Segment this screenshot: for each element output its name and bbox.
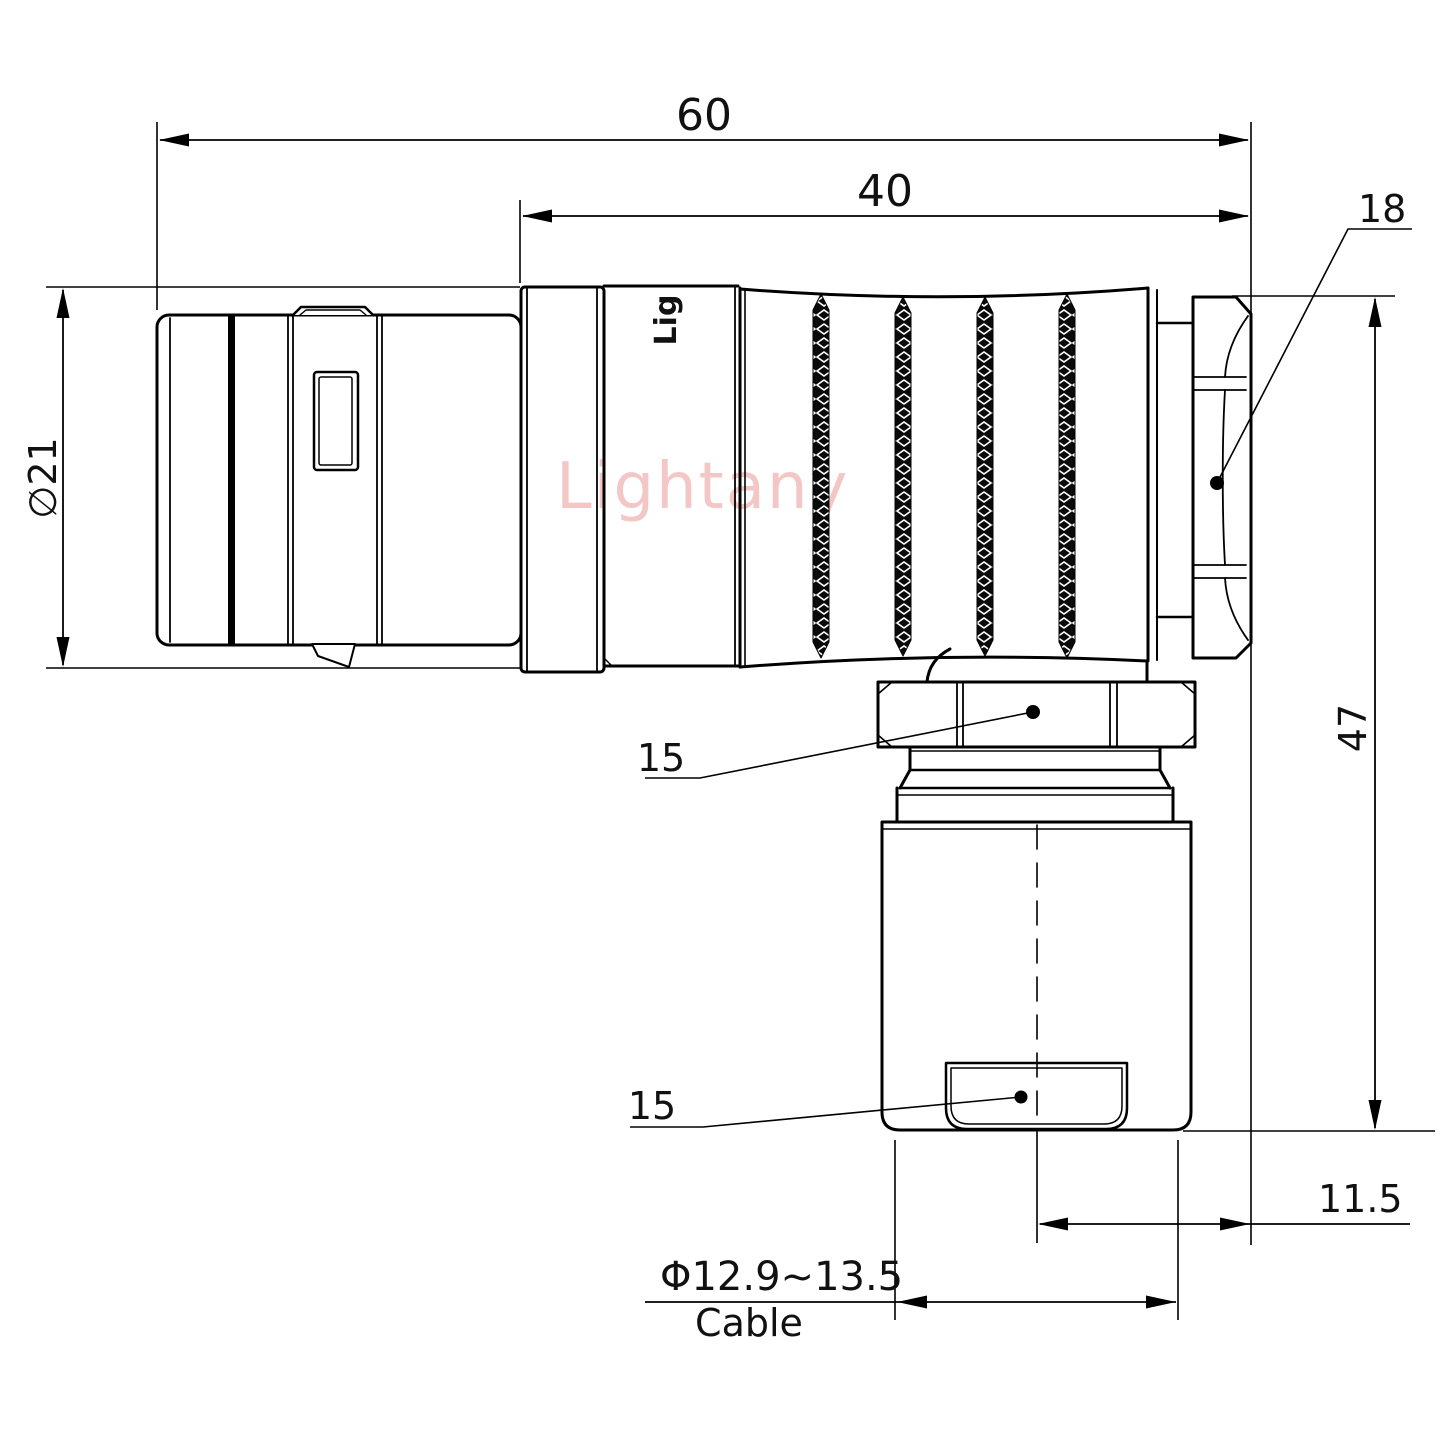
dim-shell-diameter: ∅21 [21, 288, 70, 667]
gland-rings [897, 747, 1173, 822]
elbow-transition [927, 649, 1147, 682]
body-engraving-text: Lig [649, 295, 684, 346]
dim-text-47: 47 [1331, 704, 1375, 752]
dim-text-cable-range: Φ12.9~13.5 [660, 1254, 903, 1300]
dim-overall-height: 47 [1331, 297, 1382, 1130]
knurl-strip [977, 297, 993, 656]
dim-text-40: 40 [857, 166, 913, 217]
dim-text-15-lower: 15 [628, 1084, 676, 1128]
callout-backnut-18: 18 [1210, 187, 1412, 490]
dim-text-60: 60 [676, 90, 732, 141]
cable-gland-body [882, 822, 1191, 1135]
dim-text-18: 18 [1358, 187, 1406, 231]
watermark-text: Lightany [556, 450, 849, 524]
connector-outline [157, 286, 1251, 1135]
dim-front-length: 40 [522, 166, 1249, 223]
dim-exit-offset: 11.5 [1038, 1177, 1410, 1231]
dim-cable-diameter: Φ12.9~13.5 Cable [645, 1254, 1176, 1345]
dim-text-11-5: 11.5 [1318, 1177, 1403, 1221]
shell-bottom-notch [312, 644, 355, 667]
knurl-strip [813, 294, 829, 658]
dim-overall-length: 60 [159, 90, 1249, 147]
dim-text-cable-label: Cable [695, 1301, 803, 1345]
dim-text-dia21: ∅21 [21, 437, 65, 518]
neck [1157, 323, 1193, 617]
dim-text-15-upper: 15 [637, 736, 685, 780]
knurl-strip [895, 297, 911, 656]
receptacle-shell [157, 307, 521, 667]
shell-dark-band [228, 316, 235, 644]
technical-drawing-page: Lightany [0, 0, 1440, 1440]
knurl-strip [1059, 294, 1075, 658]
back-nut [1193, 297, 1251, 658]
connector-dimension-drawing: Lightany [0, 0, 1440, 1440]
